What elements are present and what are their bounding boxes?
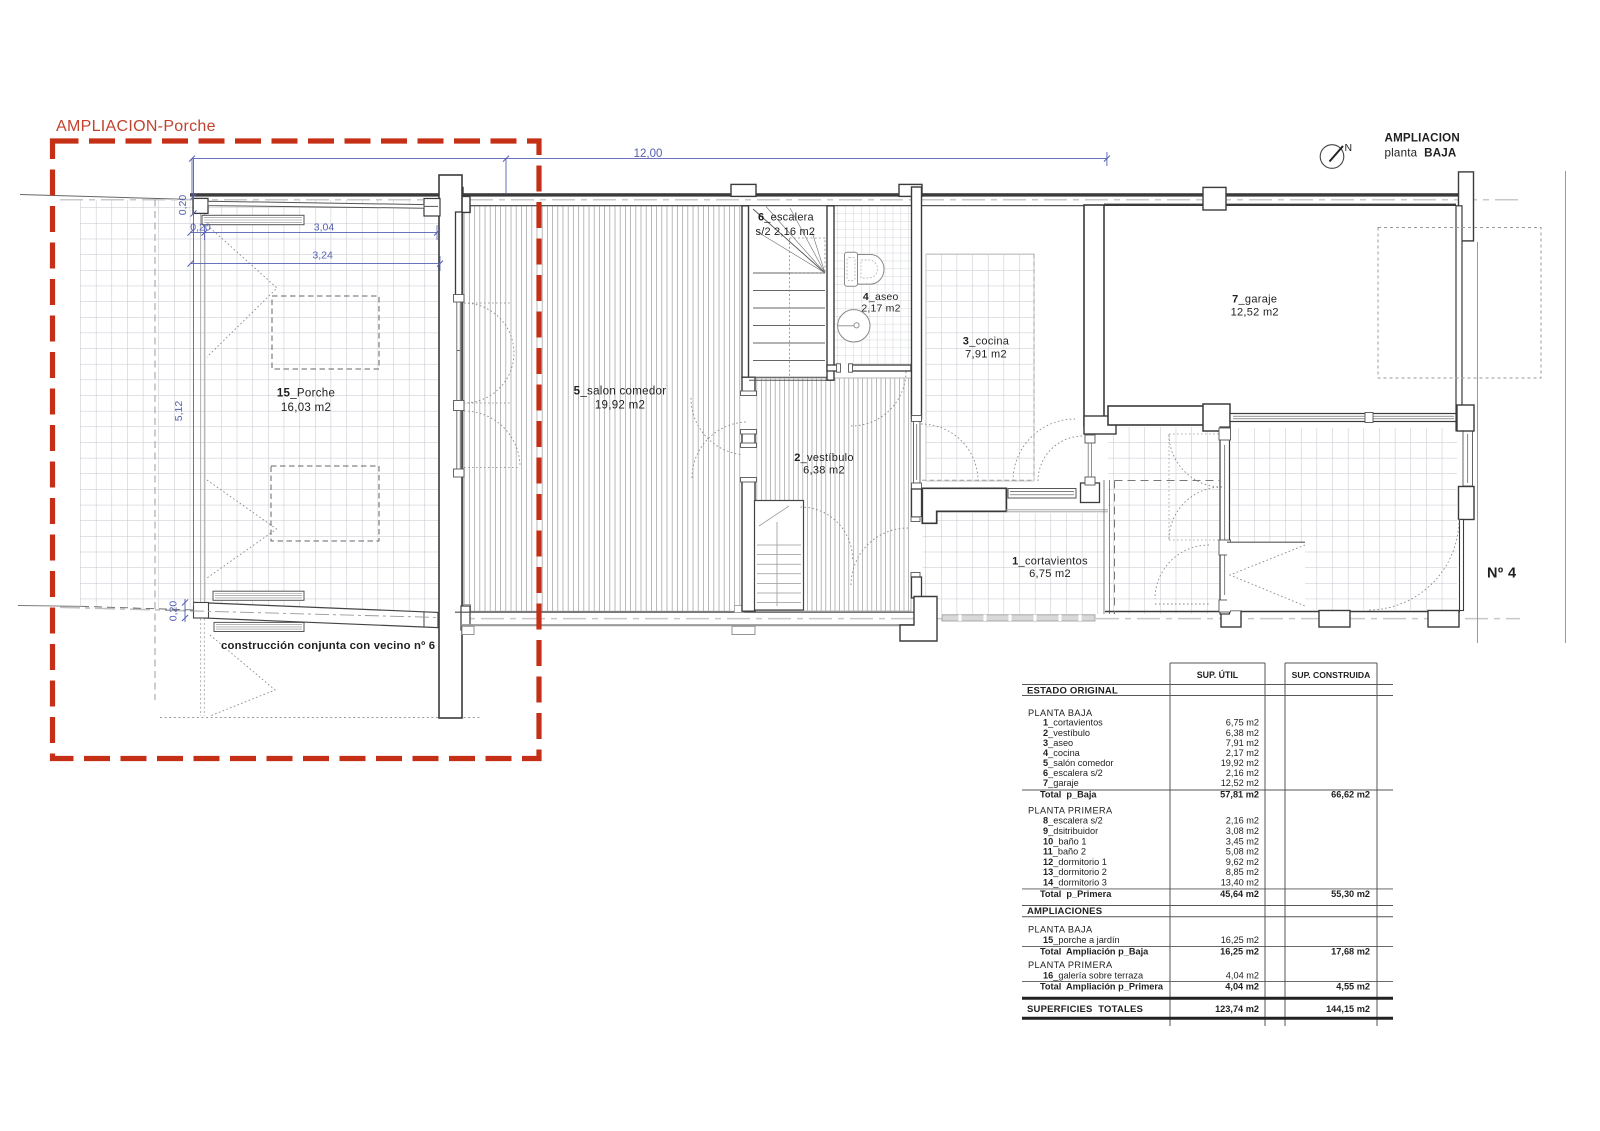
- svg-text:12,52 m2: 12,52 m2: [1221, 778, 1259, 788]
- svg-text:s/2 2,16 m2: s/2 2,16 m2: [756, 226, 816, 238]
- svg-text:16,25 m2: 16,25 m2: [1221, 935, 1259, 945]
- svg-text:Total p_Baja: Total p_Baja: [1040, 789, 1097, 799]
- svg-text:construcción conjunta con veci: construcción conjunta con vecino nº 6: [221, 640, 435, 652]
- svg-text:12_dormitorio 1: 12_dormitorio 1: [1043, 857, 1107, 867]
- svg-text:AMPLIACION-Porche: AMPLIACION-Porche: [56, 118, 216, 135]
- svg-text:13_dormitorio 2: 13_dormitorio 2: [1043, 867, 1107, 877]
- svg-text:16_galería sobre terraza: 16_galería sobre terraza: [1043, 970, 1144, 980]
- svg-text:3,45 m2: 3,45 m2: [1226, 836, 1259, 846]
- svg-text:5,12: 5,12: [173, 401, 185, 422]
- svg-text:5_salon comedor: 5_salon comedor: [574, 386, 667, 398]
- svg-text:4,55 m2: 4,55 m2: [1336, 981, 1370, 991]
- svg-text:SUP. ÚTIL: SUP. ÚTIL: [1197, 669, 1239, 680]
- svg-text:2_vestíbulo: 2_vestíbulo: [794, 452, 854, 464]
- svg-text:9_dsitribuidor: 9_dsitribuidor: [1043, 826, 1098, 836]
- svg-text:15_Porche: 15_Porche: [277, 388, 335, 400]
- svg-text:66,62 m2: 66,62 m2: [1331, 789, 1370, 799]
- svg-text:3_aseo: 3_aseo: [1043, 738, 1073, 748]
- svg-text:AMPLIACIONES: AMPLIACIONES: [1027, 906, 1102, 917]
- svg-text:6,75 m2: 6,75 m2: [1226, 718, 1259, 728]
- svg-text:1_cortavientos: 1_cortavientos: [1043, 718, 1103, 728]
- svg-text:123,74 m2: 123,74 m2: [1215, 1004, 1259, 1014]
- svg-text:6,38 m2: 6,38 m2: [803, 465, 845, 477]
- svg-text:2_vestíbulo: 2_vestíbulo: [1043, 728, 1090, 738]
- svg-text:PLANTA PRIMERA: PLANTA PRIMERA: [1028, 805, 1113, 815]
- svg-text:Total Ampliación p_Baja: Total Ampliación p_Baja: [1040, 946, 1149, 956]
- svg-text:19,92 m2: 19,92 m2: [1221, 758, 1259, 768]
- svg-text:PLANTA BAJA: PLANTA BAJA: [1028, 925, 1093, 935]
- svg-text:0,20: 0,20: [177, 195, 189, 216]
- svg-text:19,92 m2: 19,92 m2: [595, 400, 645, 412]
- svg-text:2,16 m2: 2,16 m2: [1226, 768, 1259, 778]
- svg-text:planta BAJA: planta BAJA: [1385, 147, 1457, 160]
- svg-text:N: N: [1345, 142, 1353, 154]
- svg-text:6,38 m2: 6,38 m2: [1226, 728, 1259, 738]
- svg-text:13,40 m2: 13,40 m2: [1221, 878, 1259, 888]
- svg-text:8_escalera s/2: 8_escalera s/2: [1043, 816, 1103, 826]
- svg-text:4_cocina: 4_cocina: [1043, 748, 1081, 758]
- svg-text:0,20: 0,20: [168, 601, 180, 622]
- svg-text:3,08 m2: 3,08 m2: [1226, 826, 1259, 836]
- svg-text:9,62 m2: 9,62 m2: [1226, 857, 1259, 867]
- svg-text:PLANTA BAJA: PLANTA BAJA: [1028, 708, 1093, 718]
- svg-text:15_porche a jardín: 15_porche a jardín: [1043, 935, 1120, 945]
- svg-text:Total Ampliación p_Primera: Total Ampliación p_Primera: [1040, 981, 1164, 991]
- svg-text:Nº 4: Nº 4: [1487, 566, 1516, 582]
- svg-text:7,91 m2: 7,91 m2: [965, 349, 1007, 361]
- svg-text:11_baño 2: 11_baño 2: [1043, 847, 1086, 857]
- svg-text:3_cocina: 3_cocina: [963, 336, 1010, 348]
- svg-text:3,24: 3,24: [312, 250, 333, 262]
- svg-text:144,15 m2: 144,15 m2: [1326, 1004, 1370, 1014]
- svg-text:12,00: 12,00: [634, 148, 663, 160]
- svg-text:2,16 m2: 2,16 m2: [1226, 816, 1259, 826]
- svg-text:AMPLIACION: AMPLIACION: [1385, 132, 1460, 145]
- svg-text:17,68 m2: 17,68 m2: [1331, 946, 1370, 956]
- svg-text:5,08 m2: 5,08 m2: [1226, 847, 1259, 857]
- svg-text:6,75 m2: 6,75 m2: [1029, 568, 1071, 580]
- svg-text:4_aseo: 4_aseo: [863, 291, 899, 303]
- svg-text:16,03 m2: 16,03 m2: [281, 402, 331, 414]
- svg-text:45,64 m2: 45,64 m2: [1220, 889, 1259, 899]
- svg-text:SUPERFICIES TOTALES: SUPERFICIES TOTALES: [1027, 1004, 1143, 1015]
- svg-text:8,85 m2: 8,85 m2: [1226, 867, 1259, 877]
- svg-text:14_dormitorio 3: 14_dormitorio 3: [1043, 878, 1107, 888]
- svg-text:3,04: 3,04: [314, 222, 335, 234]
- svg-text:0,20: 0,20: [190, 222, 211, 234]
- svg-text:4,04 m2: 4,04 m2: [1225, 981, 1259, 991]
- svg-text:7_garaje: 7_garaje: [1232, 294, 1277, 306]
- svg-text:2,17 m2: 2,17 m2: [1226, 748, 1259, 758]
- svg-text:PLANTA PRIMERA: PLANTA PRIMERA: [1028, 960, 1113, 970]
- svg-text:2,17 m2: 2,17 m2: [861, 303, 900, 315]
- svg-text:Total p_Primera: Total p_Primera: [1040, 889, 1112, 899]
- svg-text:7_garaje: 7_garaje: [1043, 778, 1079, 788]
- svg-text:SUP. CONSTRUIDA: SUP. CONSTRUIDA: [1292, 670, 1371, 680]
- svg-text:16,25 m2: 16,25 m2: [1220, 946, 1259, 956]
- svg-text:4,04 m2: 4,04 m2: [1226, 970, 1259, 980]
- svg-text:1_cortavientos: 1_cortavientos: [1012, 556, 1088, 568]
- svg-text:ESTADO ORIGINAL: ESTADO ORIGINAL: [1027, 686, 1118, 697]
- svg-text:6_escalera: 6_escalera: [758, 212, 815, 224]
- svg-text:6_escalera s/2: 6_escalera s/2: [1043, 768, 1103, 778]
- svg-text:57,81 m2: 57,81 m2: [1220, 789, 1259, 799]
- svg-text:7,91 m2: 7,91 m2: [1226, 738, 1259, 748]
- svg-text:5_salón comedor: 5_salón comedor: [1043, 758, 1114, 768]
- svg-text:10_baño 1: 10_baño 1: [1043, 836, 1086, 846]
- svg-text:12,52 m2: 12,52 m2: [1231, 307, 1279, 319]
- svg-text:55,30 m2: 55,30 m2: [1331, 889, 1370, 899]
